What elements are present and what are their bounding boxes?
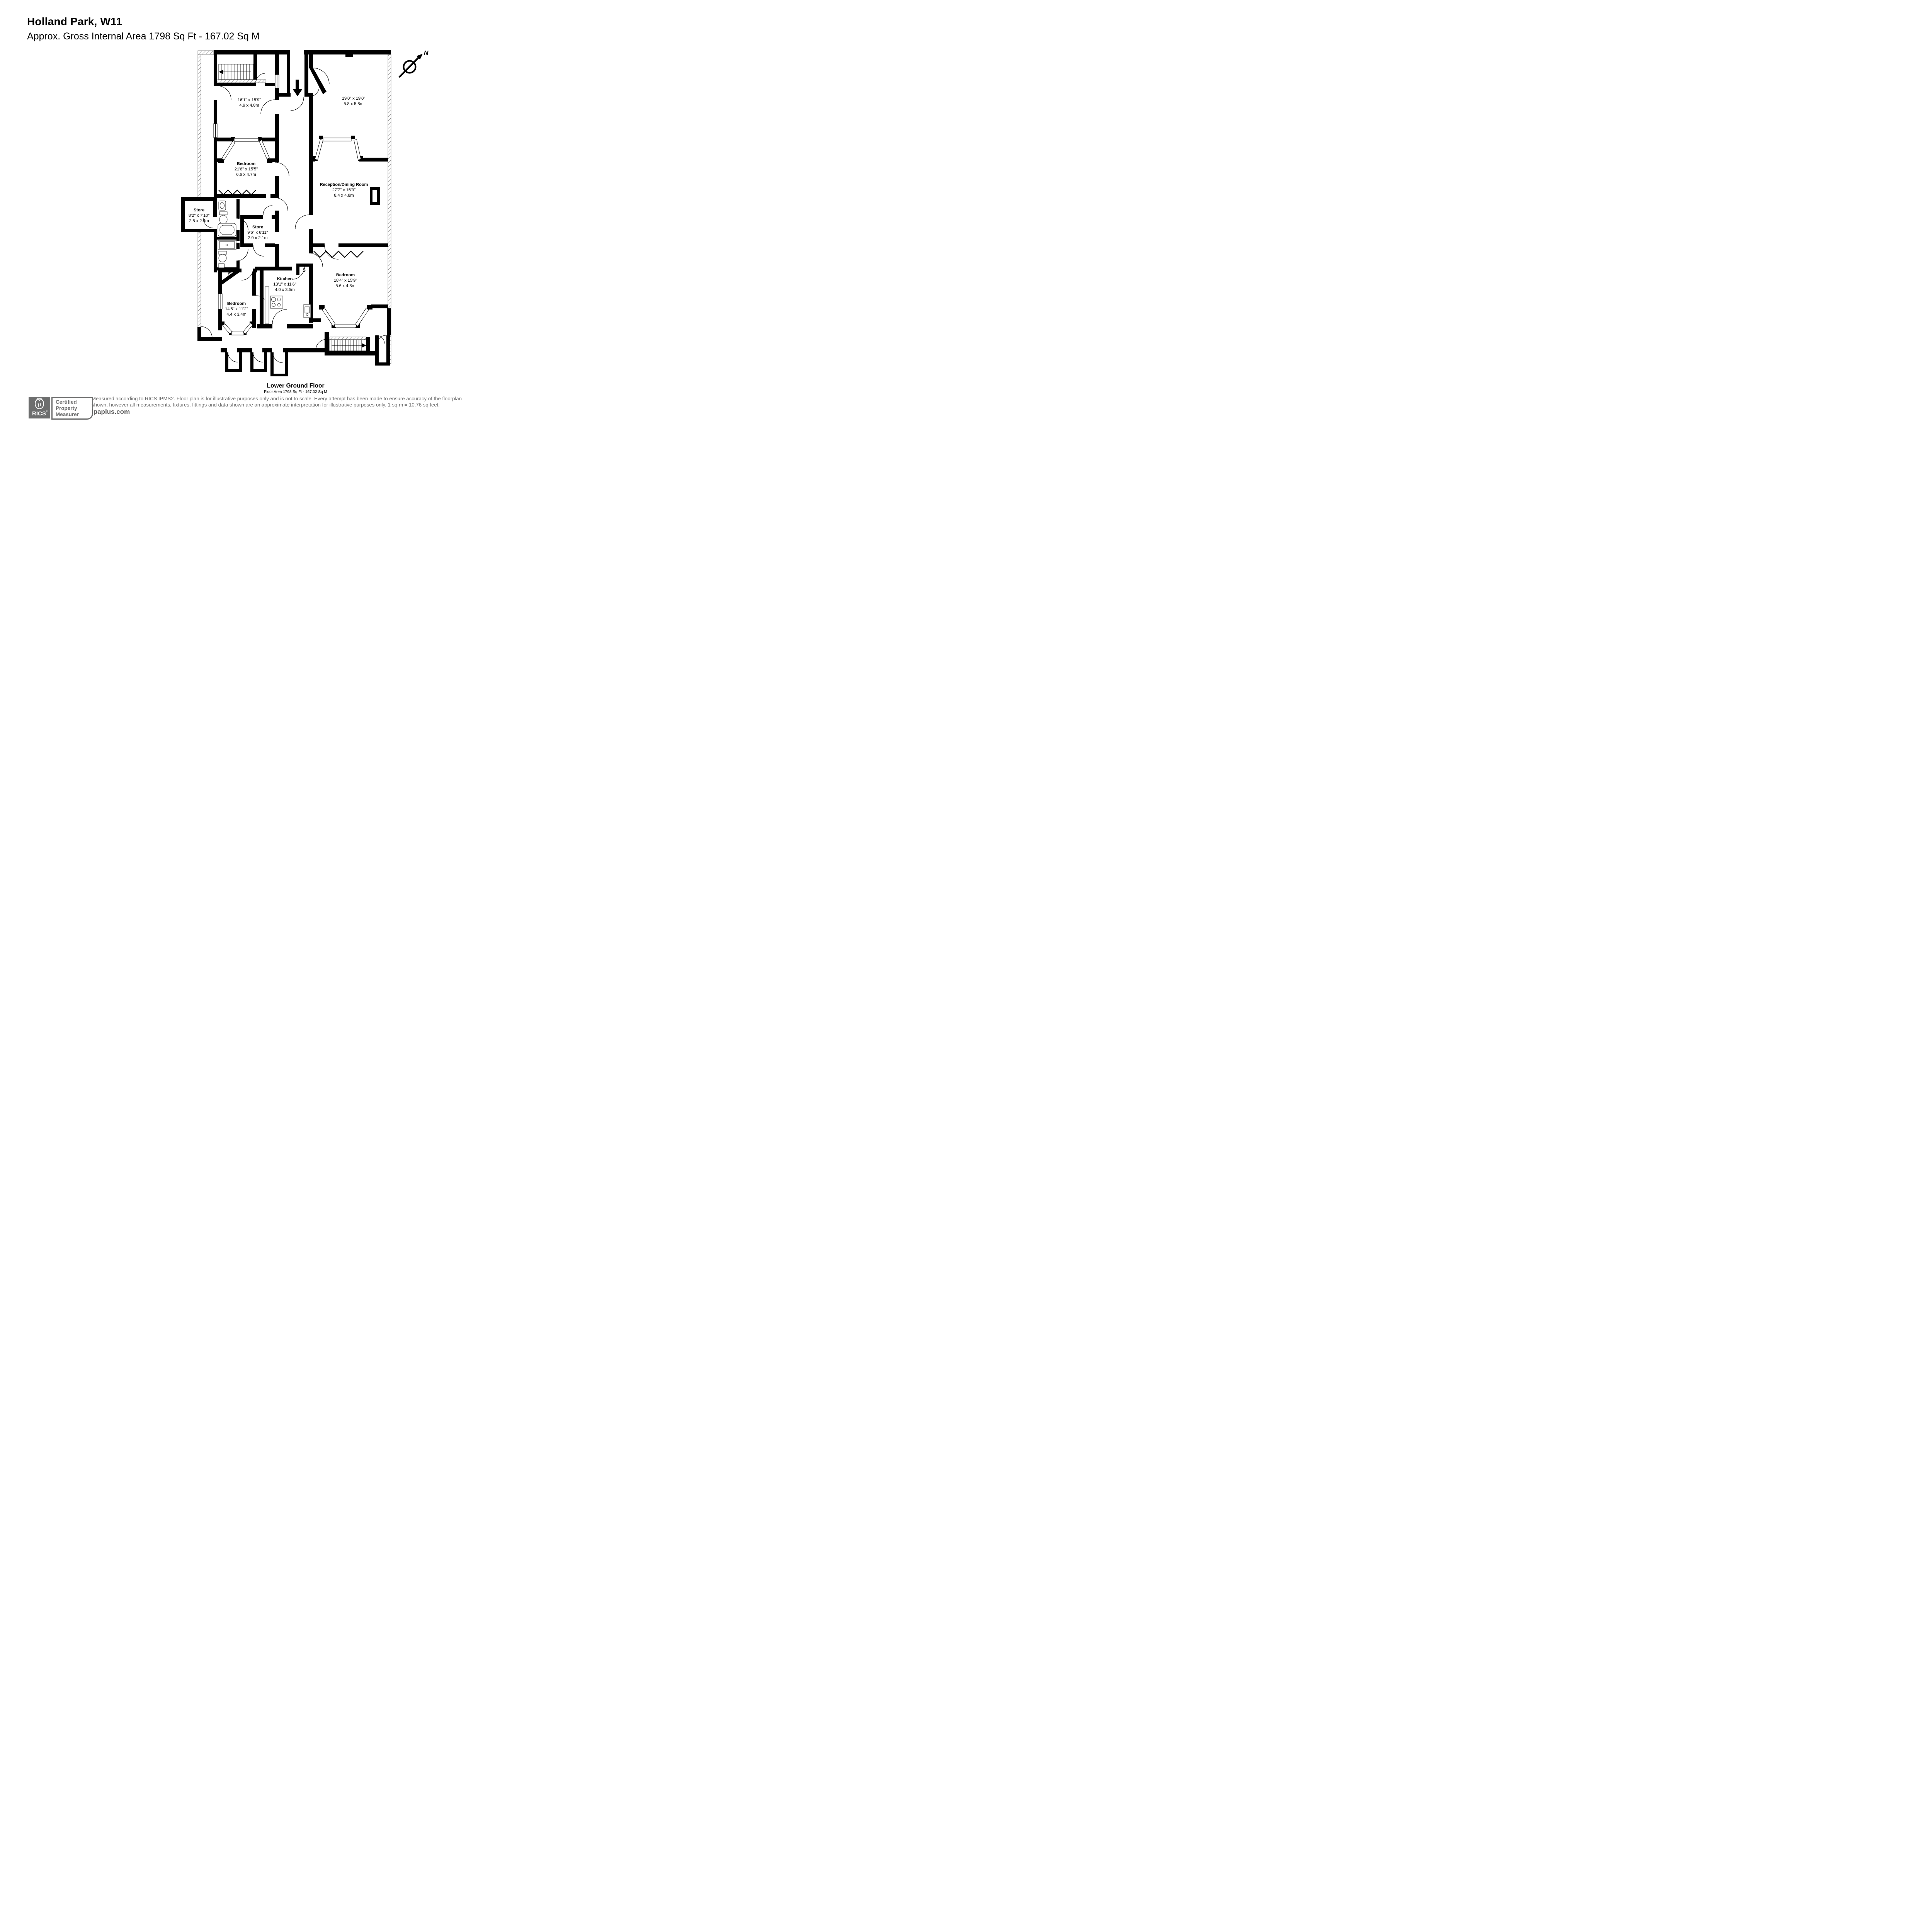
room-label-reception: Reception/Dining Room 27'7" x 15'9" 8.4 … xyxy=(320,182,368,198)
disclaimer-text: Measured according to RICS IPMS2. Floor … xyxy=(92,396,476,408)
floor-area-line: Floor Area 1798 Sq Ft - 167.02 Sq M xyxy=(264,390,327,394)
room-label-store-mid: Store 9'6" x 6'11" 2.9 x 2.1m xyxy=(247,224,268,241)
room-label-store-left: Store 8'2" x 7'10" 2.5 x 2.4m xyxy=(189,207,209,224)
door-arcs xyxy=(201,68,386,363)
cupboard-label-right: S xyxy=(303,268,306,273)
rics-lion-icon: RICS ® xyxy=(29,397,50,418)
bathroom-fixtures xyxy=(218,201,236,268)
floorplan-page: Holland Park, W11 Approx. Gross Internal… xyxy=(0,0,597,422)
floor-name: Lower Ground Floor xyxy=(267,383,325,389)
wall-windows xyxy=(214,75,279,309)
compass-north-label: N xyxy=(424,50,429,56)
website-link[interactable]: lpaplus.com xyxy=(92,408,130,416)
certified-property-measurer-badge: Certified Property Measurer xyxy=(51,397,93,420)
kitchen-sink xyxy=(304,304,311,318)
rics-logo-text: RICS xyxy=(32,410,46,417)
entrance-arrow-icon xyxy=(293,80,303,96)
cupboard-label-left: S xyxy=(228,272,231,277)
room-label-bedroom-main: Bedroom 21'8" x 15'5" 6.6 x 4.7m xyxy=(235,161,258,177)
room-label-bedroom-lower: Bedroom 14'5" x 11'2" 4.4 x 3.4m xyxy=(225,301,248,317)
floorplan-drawing: N xyxy=(0,0,597,422)
rics-logo: RICS ® xyxy=(29,397,50,418)
room-label-bedroom-right: Bedroom 18'4" x 15'9" 5.6 x 4.8m xyxy=(334,272,357,289)
room-label-rear-room: 19'0" x 19'0" 5.8 x 5.8m xyxy=(342,96,365,107)
kitchen-hob xyxy=(270,296,283,308)
room-label-kitchen: Kitchen 13'1" x 11'6" 4.0 x 3.5m xyxy=(273,276,296,293)
rics-reg-mark: ® xyxy=(46,410,48,413)
staircase-upper xyxy=(219,64,253,80)
staircase-lower xyxy=(329,340,366,351)
compass-icon: N xyxy=(399,50,429,77)
room-label-front-room: 16'1" x 15'9" 4.9 x 4.8m xyxy=(238,97,261,108)
kitchen-counter xyxy=(265,287,269,324)
